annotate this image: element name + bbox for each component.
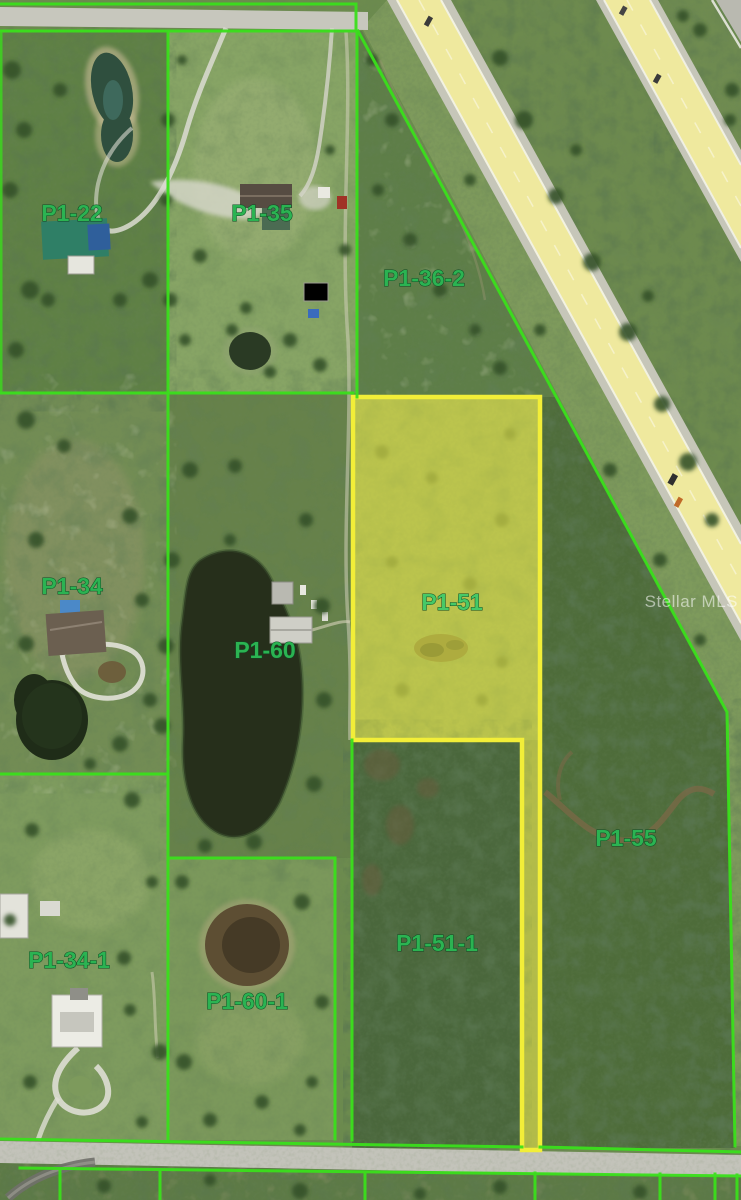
parcel-label-p1-36-2: P1-36-2: [383, 265, 465, 291]
parcel-label-p1-35: P1-35: [231, 200, 293, 226]
parcel-label-p1-51-1: P1-51-1: [396, 930, 478, 956]
parcel-label-p1-51: P1-51: [421, 589, 483, 615]
parcel-label-p1-34: P1-34: [41, 573, 103, 599]
watermark-text: Stellar MLS: [645, 592, 738, 611]
parcel-label-p1-60-1: P1-60-1: [206, 988, 288, 1014]
parcel-label-p1-55: P1-55: [595, 825, 657, 851]
parcel-label-p1-34-1: P1-34-1: [28, 947, 110, 973]
parcel-label-p1-60: P1-60: [234, 637, 295, 663]
parcel-map-screenshot: P1-22 P1-35 P1-36-2 P1-34 P1-60 P1-51 P1…: [0, 0, 741, 1200]
pond-p1-60-1: [199, 899, 295, 991]
parcel-map-image: P1-22 P1-35 P1-36-2 P1-34 P1-60 P1-51 P1…: [0, 0, 741, 1200]
parcel-label-p1-22: P1-22: [41, 200, 102, 226]
